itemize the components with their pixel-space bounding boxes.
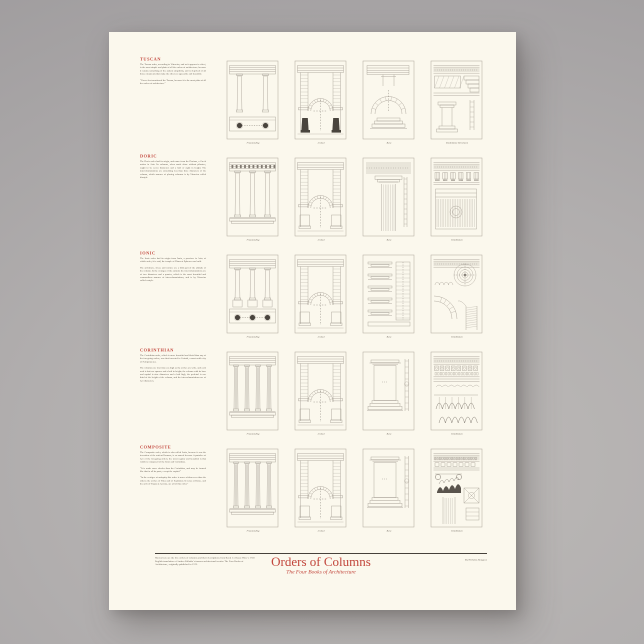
order-paragraph: The Doric order had its origin, and name… xyxy=(140,161,206,180)
composite-freestanding-drawing xyxy=(226,448,279,528)
drawing-caption: Arched xyxy=(294,239,347,242)
ionic-freestanding-drawing xyxy=(226,254,279,334)
drawing-caption: Base xyxy=(362,142,415,145)
drawing-caption: Freestanding xyxy=(226,239,279,242)
poster-subtitle: The Four Books of Architecture xyxy=(238,569,404,575)
drawing-caption: Entablature xyxy=(430,530,483,533)
poster: TUSCAN The Tuscan order, according to Vi… xyxy=(109,32,516,610)
order-paragraph: The Tuscan order, according to Vitruvius… xyxy=(140,64,206,77)
tuscan-entablature-drawing xyxy=(430,60,483,140)
order-text-composite: COMPOSITE The Composite order, which is … xyxy=(140,445,206,534)
doric-entablature-drawing xyxy=(430,157,483,237)
drawing-caption: Base xyxy=(362,239,415,242)
ionic-entablature-drawing xyxy=(430,254,483,334)
composite-base-drawing xyxy=(362,448,415,528)
order-paragraph: The columns are four times as high as th… xyxy=(140,367,206,383)
doric-base-drawing xyxy=(362,157,415,237)
corinthian-entablature-drawing xyxy=(430,351,483,431)
order-section-ionic: IONIC The Ionic order had its origin fro… xyxy=(109,254,516,351)
order-section-composite: COMPOSITE The Composite order, which is … xyxy=(109,448,516,545)
corinthian-arched-drawing xyxy=(294,351,347,431)
order-paragraph: The Corinthian order, which is more beau… xyxy=(140,355,206,365)
order-heading: TUSCAN xyxy=(140,57,206,62)
drawing-caption: Arched xyxy=(294,142,347,145)
order-heading: IONIC xyxy=(140,251,206,256)
drawing-caption: Entablature xyxy=(430,433,483,436)
drawing-caption: Freestanding xyxy=(226,433,279,436)
drawing-caption: Base xyxy=(362,433,415,436)
order-text-ionic: IONIC The Ionic order had its origin fro… xyxy=(140,251,206,321)
order-text-tuscan: TUSCAN The Tuscan order, according to Vi… xyxy=(140,57,206,120)
ionic-arched-drawing xyxy=(294,254,347,334)
order-text-doric: DORIC The Doric order had its origin, an… xyxy=(140,154,206,211)
drawing-caption: Arched xyxy=(294,336,347,339)
drawing-caption: Freestanding xyxy=(226,530,279,533)
order-paragraph: The Ionic order had its origin from Ioni… xyxy=(140,258,206,264)
tuscan-freestanding-drawing xyxy=(226,60,279,140)
drawing-caption: Entablature xyxy=(430,336,483,339)
doric-arched-drawing xyxy=(294,157,347,237)
order-paragraph: The architrave, frieze and cornice are a… xyxy=(140,267,206,283)
drawing-caption: Freestanding xyxy=(226,142,279,145)
order-heading: COMPOSITE xyxy=(140,445,206,450)
order-heading: DORIC xyxy=(140,154,206,159)
order-paragraph: The Composite order, which is also calle… xyxy=(140,452,206,465)
drawing-caption: Arched xyxy=(294,433,347,436)
drawing-caption: Entablature & Column xyxy=(430,142,483,145)
tuscan-base-drawing xyxy=(362,60,415,140)
composite-entablature-drawing xyxy=(430,448,483,528)
order-section-corinthian: CORINTHIAN The Corinthian order, which i… xyxy=(109,351,516,448)
drawing-caption: Base xyxy=(362,530,415,533)
ionic-base-drawing xyxy=(362,254,415,334)
corinthian-freestanding-drawing xyxy=(226,351,279,431)
footer-byline: By Nicholas Rougeux xyxy=(407,559,487,562)
order-quote: “In the vestiges of antiquity this order… xyxy=(140,477,206,487)
doric-freestanding-drawing xyxy=(226,157,279,237)
poster-title: Orders of Columns xyxy=(155,555,487,569)
drawing-caption: Arched xyxy=(294,530,347,533)
composite-arched-drawing xyxy=(294,448,347,528)
drawing-caption: Freestanding xyxy=(226,336,279,339)
order-section-tuscan: TUSCAN The Tuscan order, according to Vi… xyxy=(109,60,516,157)
order-text-corinthian: CORINTHIAN The Corinthian order, which i… xyxy=(140,348,206,424)
order-quote: “I have first mentioned the Tuscan, beca… xyxy=(140,79,206,85)
drawing-caption: Entablature xyxy=(430,239,483,242)
corinthian-base-drawing xyxy=(362,351,415,431)
order-quote: “It is made more slender than the Corint… xyxy=(140,467,206,473)
order-section-doric: DORIC The Doric order had its origin, an… xyxy=(109,157,516,254)
order-heading: CORINTHIAN xyxy=(140,348,206,353)
tuscan-arched-drawing xyxy=(294,60,347,140)
drawing-caption: Base xyxy=(362,336,415,339)
